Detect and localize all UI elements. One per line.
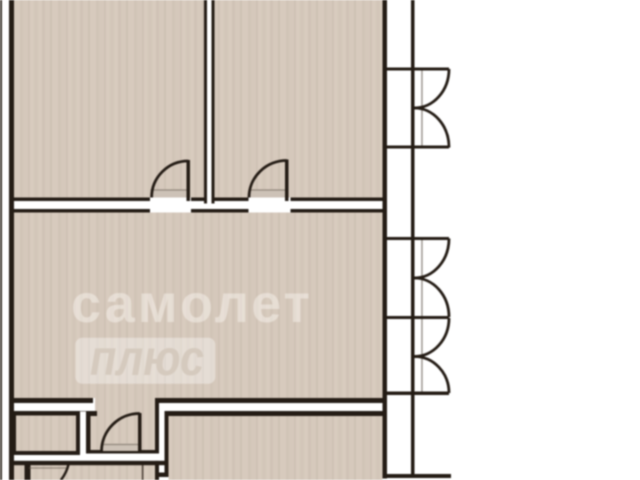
svg-text:самолет: самолет bbox=[71, 274, 310, 334]
svg-text:плюс: плюс bbox=[90, 330, 204, 386]
